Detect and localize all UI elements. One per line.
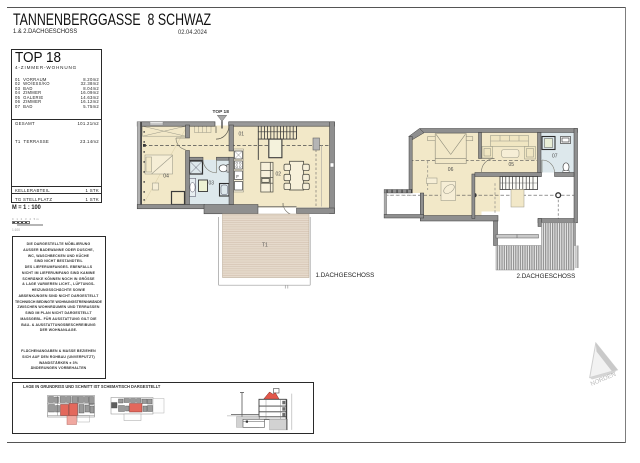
svg-text:TOP 18: TOP 18 xyxy=(213,109,230,115)
svg-text:02: 02 xyxy=(276,172,282,178)
svg-text:07: 07 xyxy=(552,154,558,160)
svg-text:04: 04 xyxy=(163,173,169,179)
svg-text:06: 06 xyxy=(448,167,454,173)
svg-text:1.DACHGESCHOSS: 1.DACHGESCHOSS xyxy=(316,272,375,279)
svg-text:T1: T1 xyxy=(262,243,268,249)
svg-text:F: F xyxy=(236,174,239,179)
svg-text:03: 03 xyxy=(209,181,215,187)
svg-text:2.DACHGESCHOSS: 2.DACHGESCHOSS xyxy=(517,273,576,280)
svg-text:01: 01 xyxy=(239,132,245,138)
svg-text:05: 05 xyxy=(509,162,515,168)
